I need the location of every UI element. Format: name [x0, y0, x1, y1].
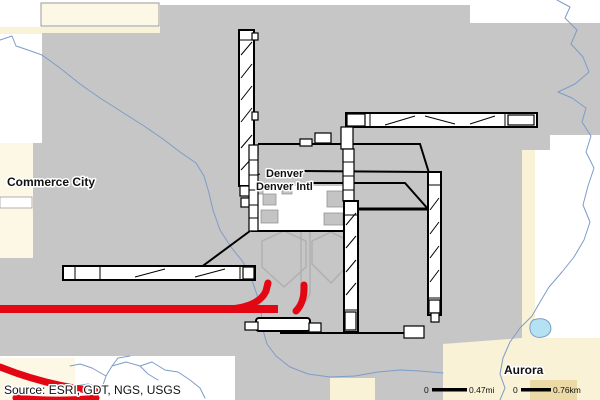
- scale-mi-bar: [432, 388, 467, 392]
- map-canvas[interactable]: Commerce City Denver Denver Intl Aurora …: [0, 0, 600, 400]
- scale-mi-label: 0.47mi: [469, 385, 495, 395]
- scale-mi-zero: 0: [424, 385, 429, 395]
- label-aurora: Aurora: [504, 363, 544, 377]
- label-denver-intl: Denver Intl: [256, 181, 313, 193]
- taxiway-line: [302, 171, 428, 172]
- scale-km-label: 0.76km: [553, 385, 581, 395]
- parcel-area: [0, 27, 160, 34]
- terminal-building: [327, 191, 345, 207]
- scale-km-bar: [521, 388, 551, 392]
- stream-line: [140, 366, 158, 380]
- parcel-building: [0, 197, 32, 208]
- pond: [530, 319, 551, 338]
- terminal-building: [324, 213, 343, 225]
- source-attribution: Source: ESRI, GDT, NGS, USGS: [4, 383, 181, 397]
- runway-northsouth-center: [344, 201, 358, 332]
- runway-eastwest-west: [63, 266, 255, 280]
- parcel-area: [330, 378, 375, 400]
- runway-northsouth-east: [428, 172, 441, 322]
- map-viewport[interactable]: Commerce City Denver Denver Intl Aurora …: [0, 0, 600, 400]
- stream-line: [70, 364, 106, 376]
- parcel-area: [41, 3, 159, 26]
- terminal-building: [263, 194, 276, 205]
- label-denver: Denver: [266, 168, 304, 180]
- label-commerce-city: Commerce City: [7, 175, 95, 189]
- scale-km-zero: 0: [513, 385, 518, 395]
- terminal-building: [261, 210, 278, 223]
- parcel-strip: [522, 150, 535, 338]
